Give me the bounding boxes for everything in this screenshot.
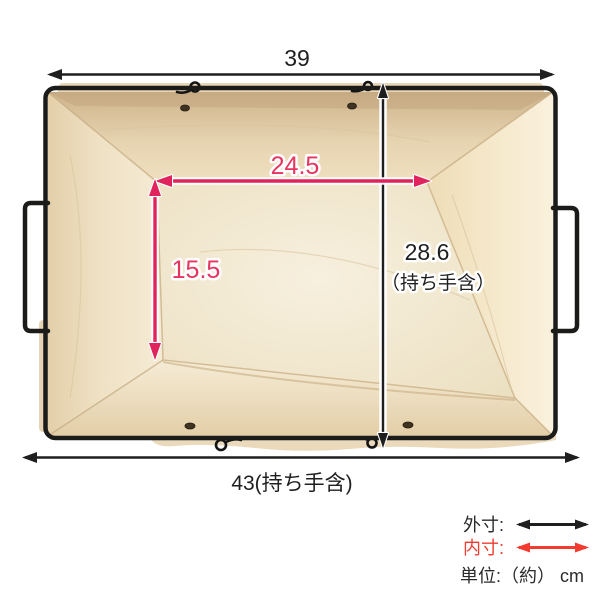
legend-unit-label: 単位:（約） cm bbox=[460, 566, 584, 586]
arrowhead-right-icon bbox=[565, 452, 580, 463]
outer-height-note: （持ち手含） bbox=[381, 272, 495, 294]
arrowhead-left-icon bbox=[516, 520, 530, 530]
outer-width-top-dimension: 39 bbox=[47, 45, 555, 80]
arrowhead-right-icon bbox=[540, 69, 555, 80]
arrowhead-right-icon bbox=[575, 543, 589, 553]
arrowhead-left-icon bbox=[516, 543, 530, 553]
inner-width-label: 24.5 bbox=[271, 152, 320, 180]
arrowhead-left-icon bbox=[47, 69, 62, 80]
arrowhead-right-icon bbox=[575, 520, 589, 530]
legend-inner-label: 内寸: bbox=[463, 538, 504, 558]
diagram-canvas: 39 28.6 （持ち手含） 24.5 15.5 bbox=[0, 0, 600, 600]
basket-photo bbox=[25, 82, 577, 451]
legend-outer-label: 外寸: bbox=[463, 515, 504, 535]
outer-height-label: 28.6 bbox=[405, 239, 450, 265]
arrowhead-left-icon bbox=[22, 452, 37, 463]
outer-width-bottom-label: 43(持ち手含) bbox=[231, 472, 352, 495]
grommet bbox=[181, 105, 190, 111]
outer-width-bottom-dimension: 43(持ち手含) bbox=[22, 452, 580, 495]
outer-width-top-label: 39 bbox=[284, 45, 310, 71]
inner-depth-label: 15.5 bbox=[172, 256, 221, 284]
grommet bbox=[348, 103, 357, 109]
legend-inner-row: 内寸: bbox=[463, 538, 589, 558]
grommet bbox=[403, 422, 413, 428]
grommet bbox=[185, 423, 195, 429]
legend: 外寸: 内寸: 単位:（約） cm bbox=[460, 515, 589, 586]
legend-outer-row: 外寸: bbox=[463, 515, 589, 535]
product-dimension-diagram: 39 28.6 （持ち手含） 24.5 15.5 bbox=[0, 0, 600, 600]
